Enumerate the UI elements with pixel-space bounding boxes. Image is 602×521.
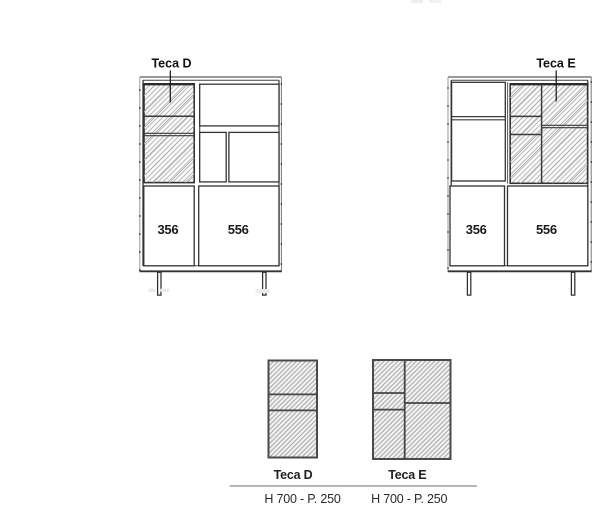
svg-text:Teca E: Teca E <box>388 468 426 482</box>
svg-text:H 700 - P. 250: H 700 - P. 250 <box>371 492 447 506</box>
svg-text:556: 556 <box>228 222 249 237</box>
svg-text:356: 356 <box>466 222 487 237</box>
svg-text:Teca D: Teca D <box>151 57 191 71</box>
svg-text:H 700 - P. 250: H 700 - P. 250 <box>264 492 340 506</box>
svg-text:Teca E: Teca E <box>536 57 575 71</box>
svg-text:Teca D: Teca D <box>274 468 313 482</box>
svg-text:356: 356 <box>158 222 179 237</box>
svg-text:556: 556 <box>536 222 557 237</box>
